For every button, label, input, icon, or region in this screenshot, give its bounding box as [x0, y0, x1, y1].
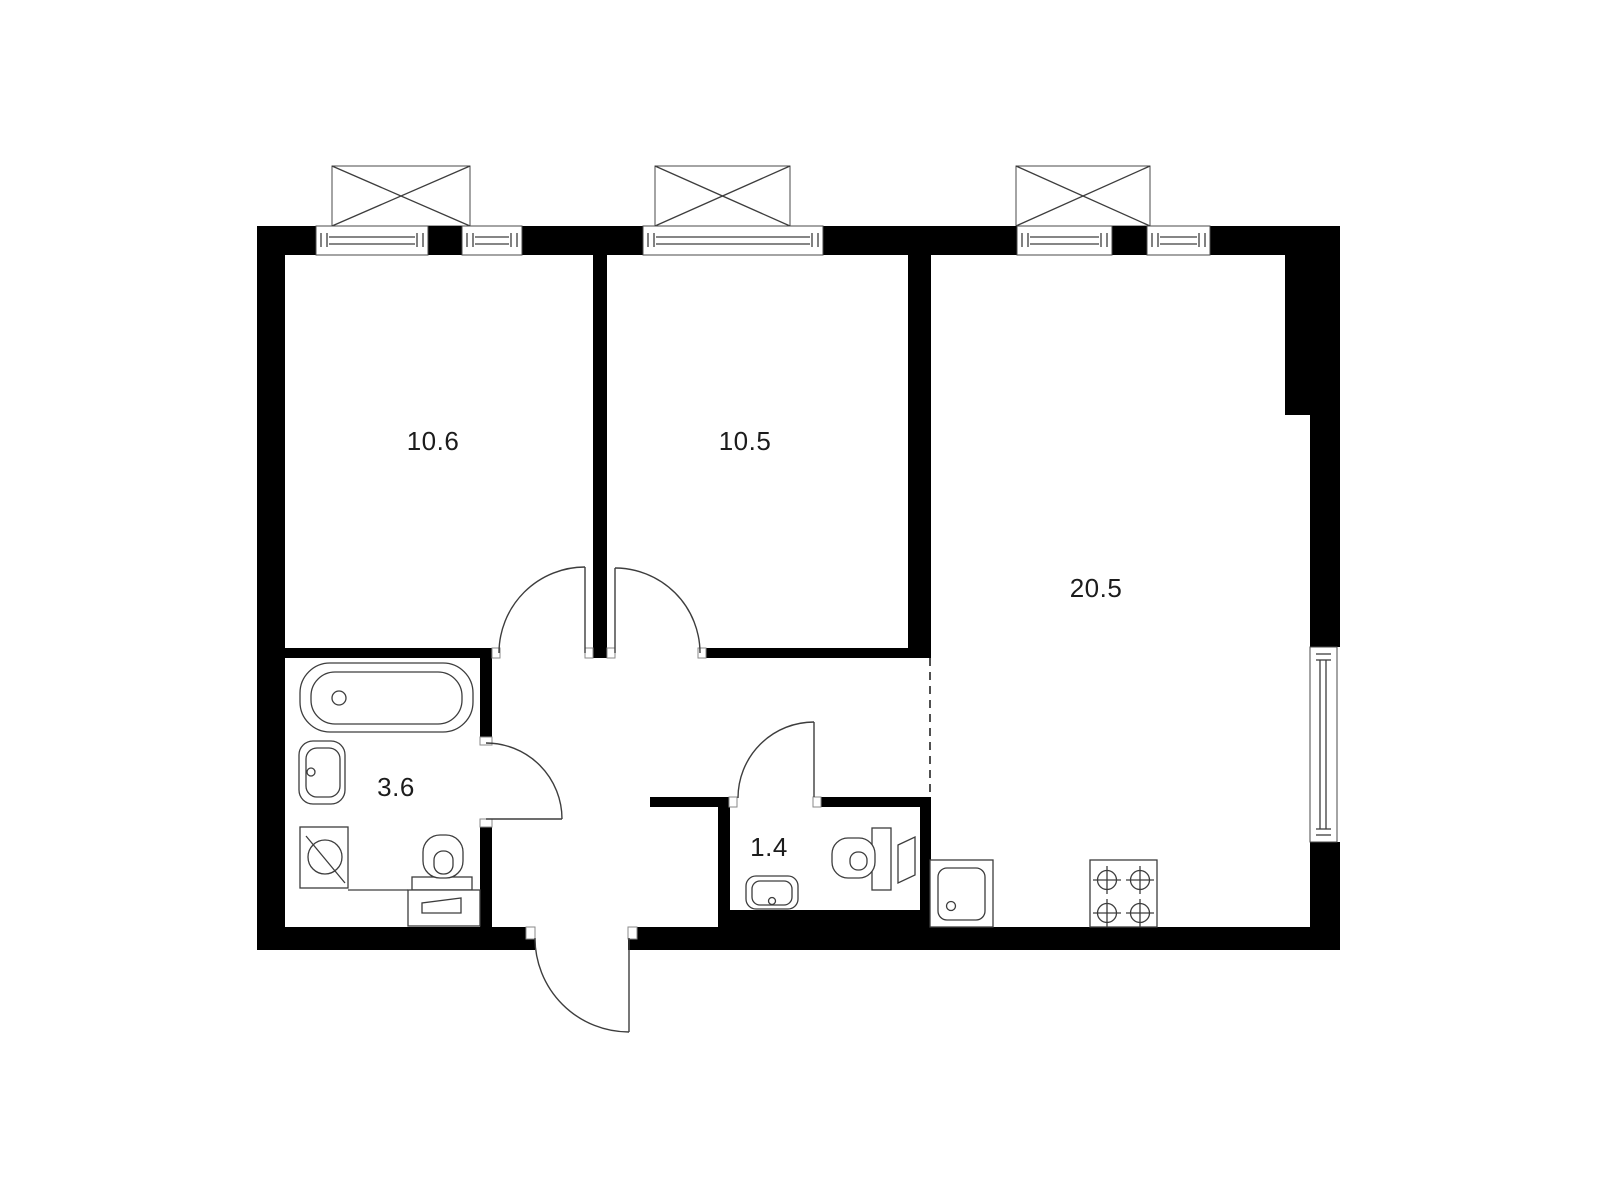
window-living-right — [1147, 226, 1210, 255]
washing-machine-symbol — [300, 827, 348, 888]
door-wc — [738, 722, 814, 798]
wall-bedroom-divider — [593, 255, 607, 648]
walls — [257, 226, 1340, 950]
room-label-bedroom1: 10.6 — [407, 426, 460, 456]
ac-unit-3 — [1016, 166, 1150, 226]
kitchen-fixtures — [930, 860, 1157, 927]
wall-bottom — [257, 927, 1340, 950]
bathtub-symbol — [300, 663, 473, 732]
floor-plan-page: 10.6 10.5 20.5 3.6 1.4 — [0, 0, 1600, 1200]
door-bedroom1 — [499, 567, 585, 653]
wall-wc-right — [920, 807, 931, 910]
window-bedroom1-right — [462, 226, 522, 255]
kitchen-sink-symbol — [930, 860, 993, 927]
window-bedroom1-left — [316, 226, 428, 255]
room-label-bedroom2: 10.5 — [719, 426, 772, 456]
wc-heater-symbol — [898, 837, 915, 883]
door-bathroom — [486, 743, 562, 819]
wall-right-upper — [1285, 255, 1340, 415]
window-living-left — [1017, 226, 1112, 255]
bathroom-toilet-symbol — [412, 835, 472, 890]
wall-right-middle — [1310, 415, 1340, 647]
wall-wc-floor — [718, 910, 931, 927]
wall-wc-left — [718, 807, 730, 910]
bathroom-cabinet-symbol — [348, 890, 480, 926]
room-label-bathroom: 3.6 — [377, 772, 415, 802]
ac-unit-1 — [332, 166, 470, 226]
windows — [316, 226, 1337, 842]
window-balcony-door — [1310, 647, 1337, 842]
wc-toilet-symbol — [832, 828, 891, 890]
door-entrance — [535, 938, 629, 1032]
ac-unit-2 — [655, 166, 790, 226]
wall-bedroom2-living — [908, 255, 931, 648]
door-bedroom2 — [615, 568, 700, 653]
ac-units — [332, 166, 1150, 226]
stove-symbol — [1090, 860, 1157, 927]
floor-plan-drawing: 10.6 10.5 20.5 3.6 1.4 — [0, 0, 1600, 1200]
room-label-living-kitchen: 20.5 — [1070, 573, 1123, 603]
window-bedroom2 — [643, 226, 823, 255]
bathroom-sink-symbol — [299, 741, 345, 804]
wc-sink-symbol — [746, 876, 798, 909]
room-label-toilet: 1.4 — [750, 832, 788, 862]
wall-left — [257, 226, 285, 950]
